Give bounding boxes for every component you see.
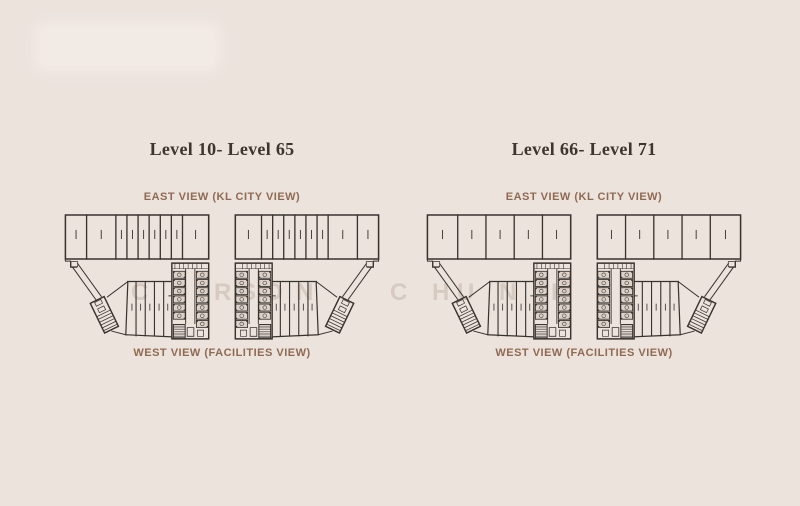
floor-plan-sheet: CIRSONCHUNKT Level 10- Level 65 EAST VIE… — [0, 0, 800, 506]
east-view-label: EAST VIEW (KL CITY VIEW) — [426, 191, 742, 203]
wing-left — [65, 215, 208, 339]
section-title: Level 10- Level 65 — [64, 139, 380, 160]
section-level-66-71: Level 66- Level 71 EAST VIEW (KL CITY VI… — [426, 0, 742, 506]
floor-plan-level-66-71 — [426, 214, 742, 345]
east-view-label: EAST VIEW (KL CITY VIEW) — [64, 191, 380, 203]
page: { "colors": { "background": "#ece3dd", "… — [0, 0, 800, 506]
section-level-10-65: Level 10- Level 65 EAST VIEW (KL CITY VI… — [64, 0, 380, 506]
west-view-label: WEST VIEW (FACILITIES VIEW) — [426, 347, 742, 359]
west-view-label: WEST VIEW (FACILITIES VIEW) — [64, 347, 380, 359]
section-title: Level 66- Level 71 — [426, 139, 742, 160]
wing-right — [235, 215, 378, 339]
wing-right — [597, 215, 740, 339]
floor-plan-level-10-65 — [64, 214, 380, 345]
watermark-letter: C — [390, 279, 407, 307]
wing-left — [427, 215, 570, 339]
